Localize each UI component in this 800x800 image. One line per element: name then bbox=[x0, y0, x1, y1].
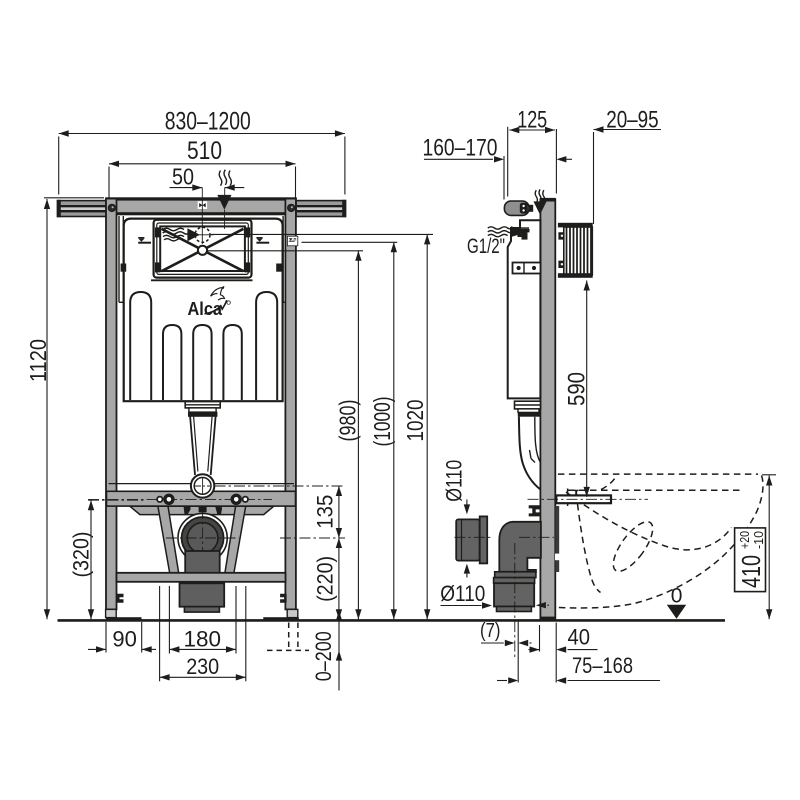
svg-text:(980): (980) bbox=[335, 400, 361, 442]
svg-text:+20: +20 bbox=[737, 531, 752, 549]
svg-text:160–170: 160–170 bbox=[423, 135, 498, 162]
svg-text:410: 410 bbox=[736, 555, 766, 588]
svg-text:75–168: 75–168 bbox=[572, 653, 633, 678]
svg-text:590: 590 bbox=[564, 372, 591, 406]
svg-text:(7): (7) bbox=[480, 620, 501, 642]
svg-text:G1/2": G1/2" bbox=[467, 235, 505, 258]
svg-text:(1000): (1000) bbox=[369, 397, 395, 447]
svg-text:0–200: 0–200 bbox=[311, 631, 336, 681]
svg-text:90: 90 bbox=[112, 626, 136, 651]
svg-text:1120: 1120 bbox=[25, 339, 51, 382]
svg-text:-10: -10 bbox=[751, 531, 766, 549]
svg-text:1020: 1020 bbox=[402, 400, 428, 442]
svg-text:Ø110: Ø110 bbox=[441, 460, 466, 502]
svg-text:(320): (320) bbox=[68, 532, 93, 578]
svg-text:135: 135 bbox=[312, 495, 337, 529]
svg-text:0: 0 bbox=[671, 584, 683, 607]
svg-text:180: 180 bbox=[184, 626, 222, 651]
svg-text:(220): (220) bbox=[312, 556, 337, 602]
svg-text:510: 510 bbox=[187, 137, 222, 165]
svg-text:230: 230 bbox=[186, 654, 219, 679]
svg-text:125: 125 bbox=[517, 106, 547, 133]
svg-text:830–1200: 830–1200 bbox=[165, 108, 251, 136]
svg-text:50: 50 bbox=[172, 164, 194, 190]
svg-text:Ø110: Ø110 bbox=[440, 581, 485, 606]
svg-text:20–95: 20–95 bbox=[606, 106, 659, 133]
svg-text:40: 40 bbox=[568, 624, 591, 649]
